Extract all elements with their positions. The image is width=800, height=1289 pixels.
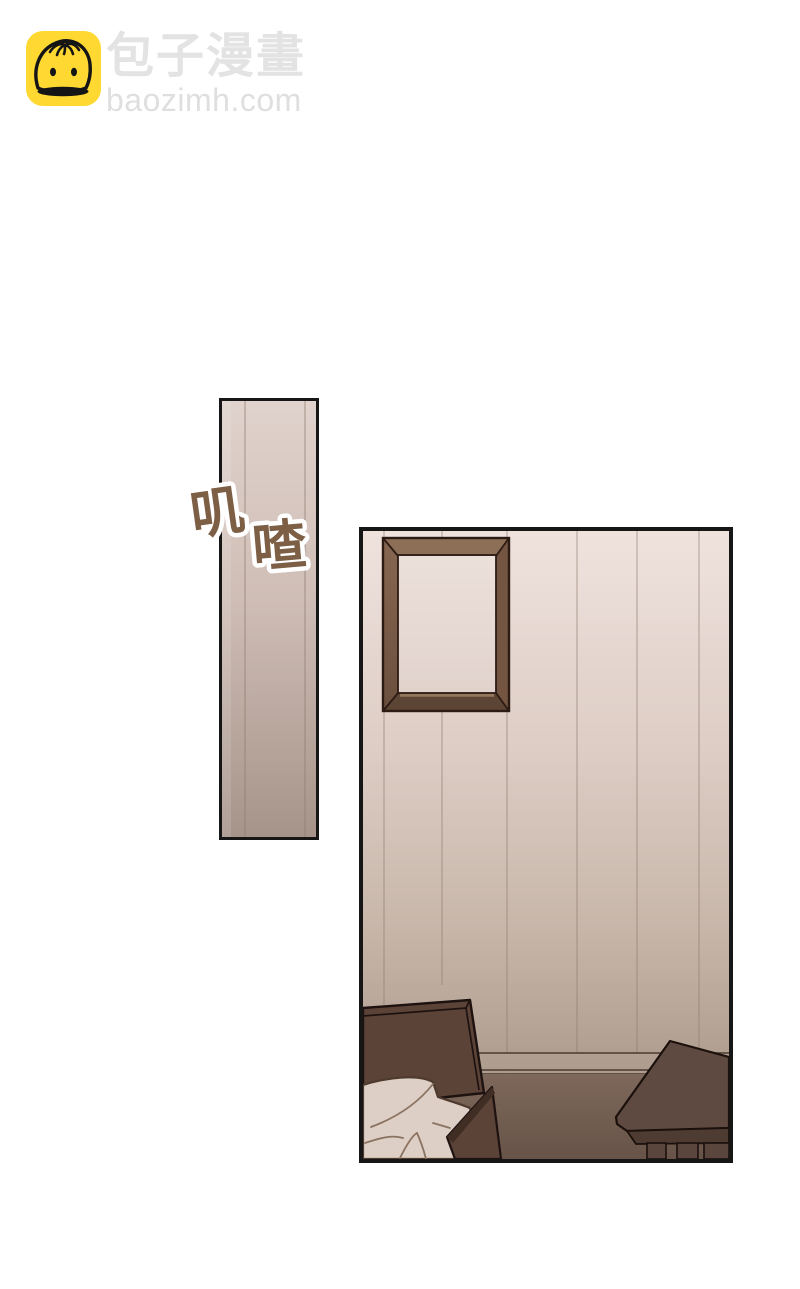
frame-right-rail	[496, 538, 509, 711]
wall-panel-art	[222, 401, 316, 837]
sfx-char-1: 叽	[186, 478, 248, 548]
watermark-text: 包子漫畫 baozimh.com	[106, 31, 306, 116]
comic-panel-room	[359, 527, 733, 1163]
bun-base	[38, 87, 89, 97]
picture-frame-canvas	[398, 555, 496, 693]
site-watermark: 包子漫畫 baozimh.com	[26, 31, 306, 116]
site-name: 包子漫畫	[106, 31, 306, 83]
bun-eye-left	[50, 68, 56, 76]
bun-eye-right	[71, 68, 77, 76]
wall-highlight-strip	[222, 401, 231, 837]
table-apron	[627, 1128, 729, 1144]
wall-background	[222, 401, 316, 837]
sfx-char-2: 喳	[250, 512, 310, 580]
sfx-text: 叽 喳	[168, 468, 338, 583]
frame-left-rail	[383, 538, 398, 711]
baozi-logo-icon	[26, 31, 101, 106]
picture-frame	[383, 538, 509, 711]
comic-panel-wall	[219, 398, 319, 840]
table-legs	[647, 1143, 729, 1159]
site-domain: baozimh.com	[106, 84, 306, 116]
comic-page: 包子漫畫 baozimh.com	[0, 0, 800, 1289]
room-panel-art	[363, 531, 729, 1159]
frame-top-rail	[383, 538, 509, 556]
